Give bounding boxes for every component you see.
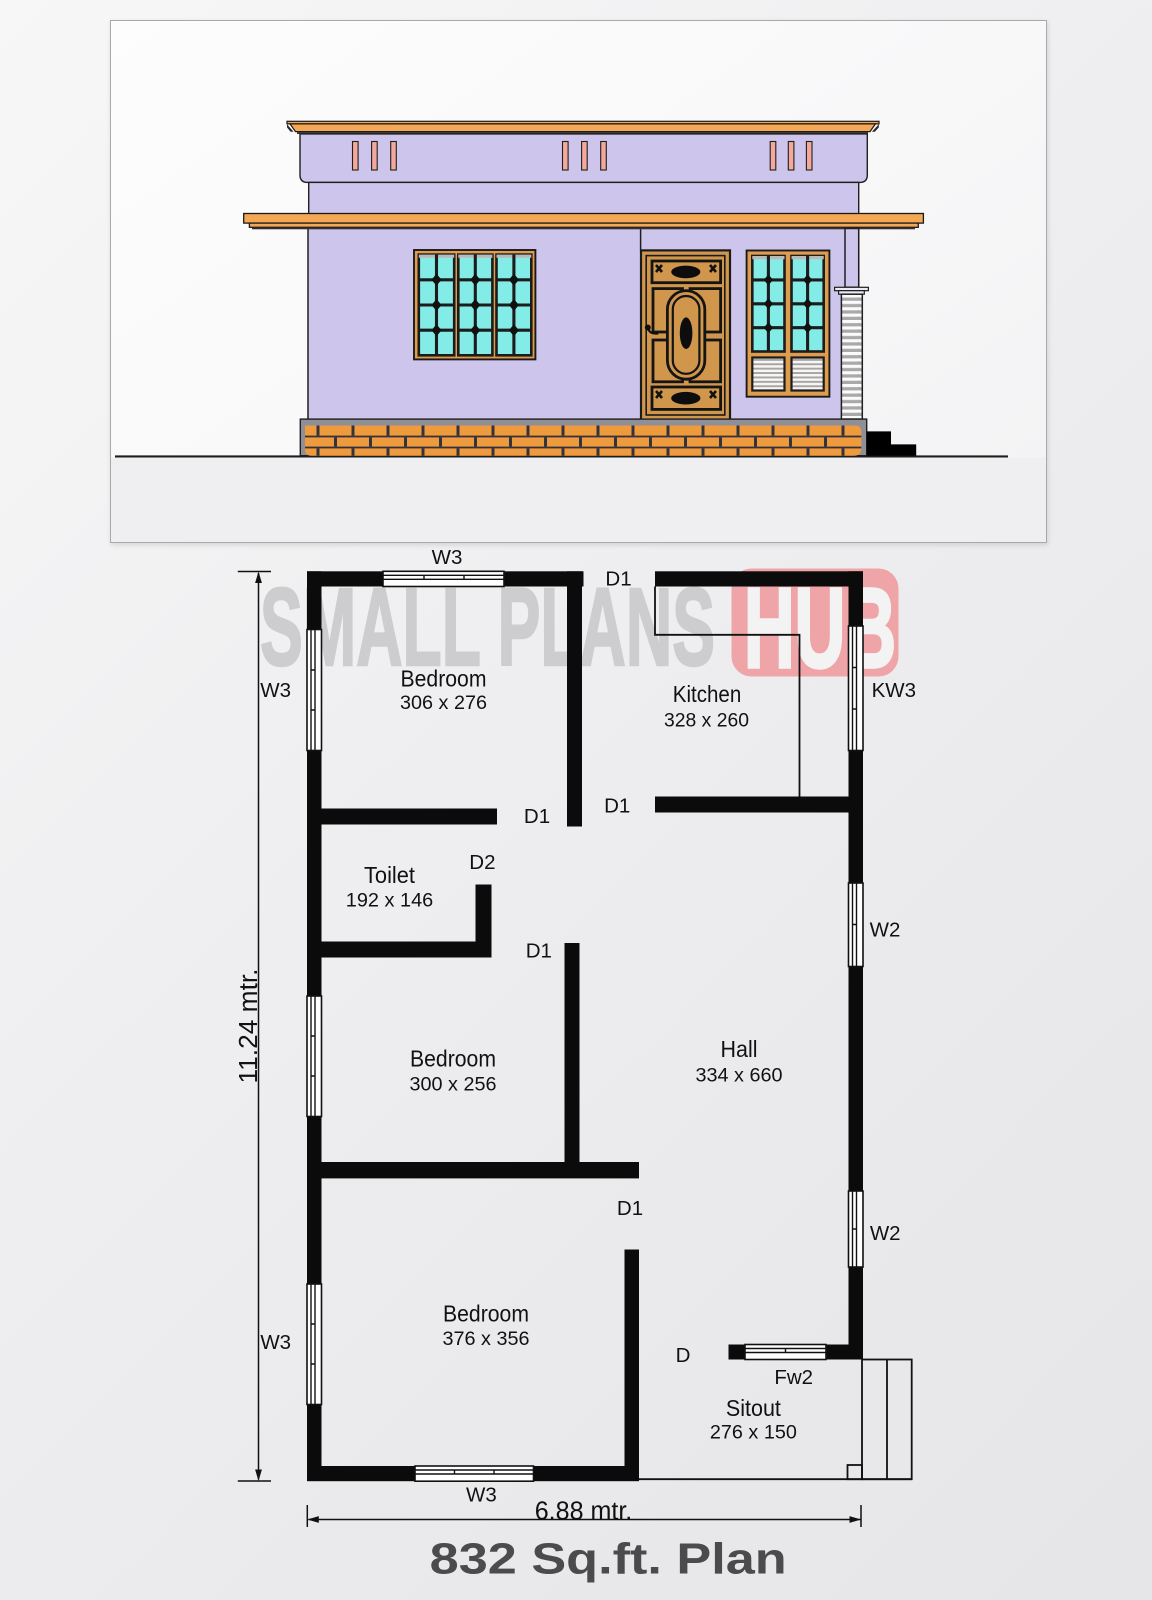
svg-text:Bedroom: Bedroom bbox=[443, 1300, 529, 1326]
svg-text:W3: W3 bbox=[466, 1484, 497, 1507]
svg-text:D1: D1 bbox=[604, 795, 630, 818]
svg-text:W2: W2 bbox=[870, 1222, 901, 1245]
svg-text:6.88 mtr.: 6.88 mtr. bbox=[535, 1497, 633, 1525]
svg-text:Toilet: Toilet bbox=[364, 862, 415, 888]
svg-text:Bedroom: Bedroom bbox=[410, 1046, 496, 1072]
svg-text:W3: W3 bbox=[260, 679, 291, 702]
svg-text:328 x 260: 328 x 260 bbox=[664, 711, 749, 732]
svg-text:W3: W3 bbox=[260, 1331, 291, 1354]
svg-text:D1: D1 bbox=[605, 568, 631, 591]
svg-text:Sitout: Sitout bbox=[726, 1395, 781, 1421]
svg-text:11.24 mtr.: 11.24 mtr. bbox=[235, 969, 263, 1084]
svg-text:D: D bbox=[676, 1344, 691, 1367]
svg-text:D1: D1 bbox=[524, 805, 550, 828]
svg-text:Fw2: Fw2 bbox=[774, 1366, 813, 1389]
svg-text:W2: W2 bbox=[870, 918, 901, 941]
svg-text:D1: D1 bbox=[526, 940, 552, 963]
svg-text:KW3: KW3 bbox=[872, 679, 916, 702]
svg-text:D1: D1 bbox=[617, 1197, 643, 1220]
svg-text:306 x 276: 306 x 276 bbox=[400, 693, 487, 714]
svg-text:376 x 356: 376 x 356 bbox=[443, 1329, 530, 1350]
svg-text:Kitchen: Kitchen bbox=[673, 681, 742, 707]
svg-text:276 x 150: 276 x 150 bbox=[710, 1422, 797, 1443]
svg-text:334 x 660: 334 x 660 bbox=[696, 1066, 783, 1087]
svg-text:Hall: Hall bbox=[721, 1036, 758, 1062]
svg-text:Bedroom: Bedroom bbox=[401, 666, 487, 692]
svg-text:D2: D2 bbox=[469, 851, 495, 874]
svg-text:192 x 146: 192 x 146 bbox=[346, 891, 434, 912]
svg-text:300 x 256: 300 x 256 bbox=[410, 1075, 497, 1096]
svg-text:W3: W3 bbox=[432, 546, 463, 569]
svg-text:832 Sq.ft. Plan: 832 Sq.ft. Plan bbox=[430, 1535, 787, 1584]
